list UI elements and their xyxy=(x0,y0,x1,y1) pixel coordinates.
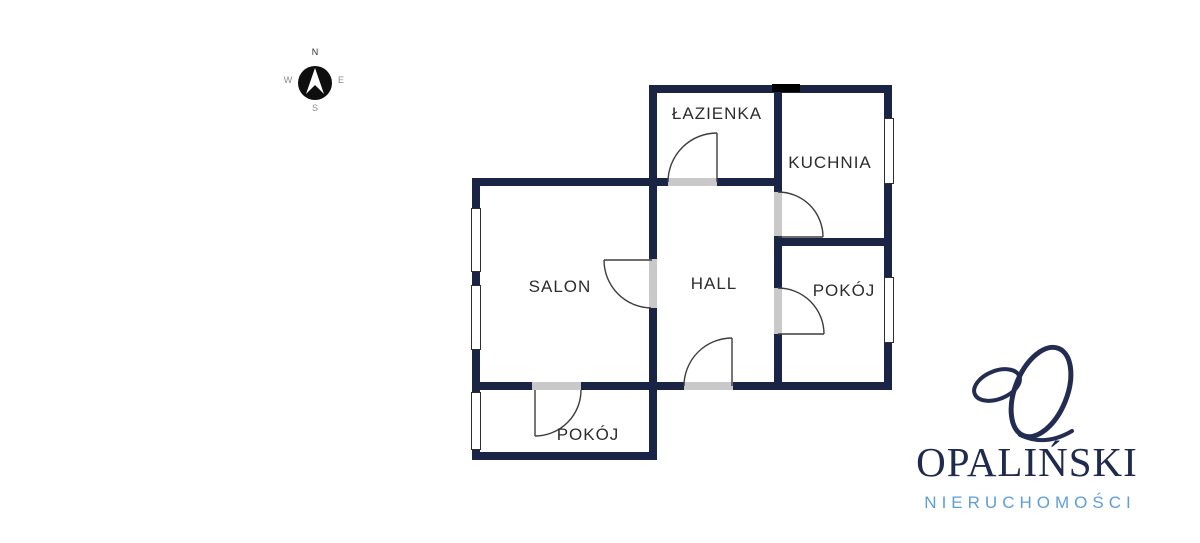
door-arc-hall xyxy=(684,338,732,386)
room-label-hall: HALL xyxy=(691,274,738,294)
door-arc-lazienka xyxy=(668,133,717,182)
brand-name: OPALIŃSKI xyxy=(916,438,1138,486)
door-arc-kuchnia xyxy=(778,192,823,237)
brand-tagline: NIERUCHOMOŚCI xyxy=(924,493,1135,513)
room-label-kuchnia: KUCHNIA xyxy=(788,153,872,173)
script-o-monogram-icon xyxy=(960,333,1090,450)
floor-plan-page: N E S W xyxy=(0,0,1200,543)
door-arc-salon xyxy=(604,260,651,308)
room-label-pokoj-bottom: POKÓJ xyxy=(557,425,620,445)
room-label-salon: SALON xyxy=(529,277,592,297)
room-label-lazienka: ŁAZIENKA xyxy=(672,104,762,124)
room-label-pokoj-right: POKÓJ xyxy=(813,281,876,301)
